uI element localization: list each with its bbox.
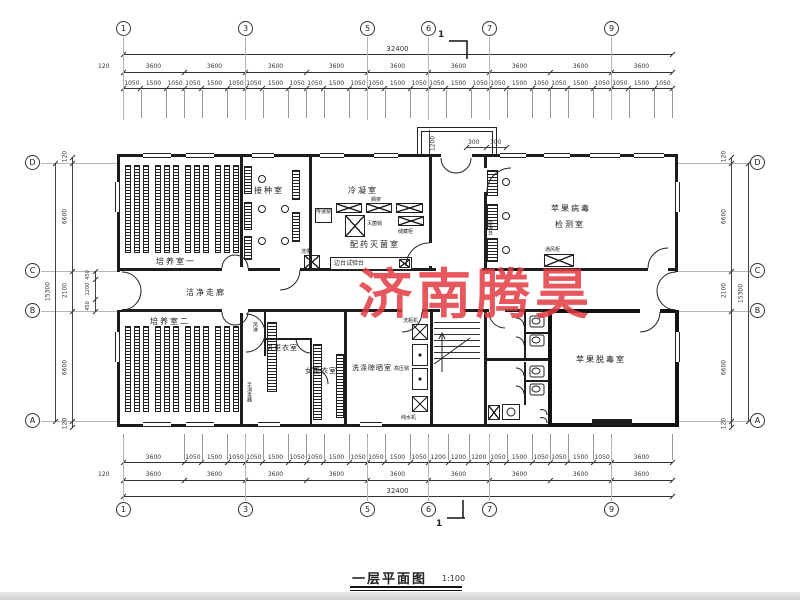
grid-bubble-bottom-7: 7 (482, 502, 497, 517)
grid-bubble-right-C: C (750, 263, 765, 278)
grid-bubble-top-9: 9 (604, 21, 619, 36)
toilet-fixture (532, 368, 540, 374)
stall-door-swings (516, 318, 524, 394)
urinal-fixtures (540, 410, 547, 423)
door-swing-culture1 (222, 255, 248, 268)
grid-bubble-right-B: B (750, 303, 765, 318)
grid-bubble-left-C: C (25, 263, 40, 278)
grid-bubble-bottom-6: 6 (421, 502, 436, 517)
grid-bubble-left-A: A (25, 413, 40, 428)
washbasin-bowl (507, 408, 515, 416)
floor-plan-canvas: 1 3 5 6 7 9 1 3 5 6 7 9 D C B A D C B A … (0, 0, 800, 600)
grid-bubble-top-7: 7 (482, 21, 497, 36)
grid-bubble-right-D: D (750, 155, 765, 170)
door-swing-culture2 (222, 312, 248, 325)
toilet-fixture (532, 337, 540, 343)
grid-bubble-top-6: 6 (421, 21, 436, 36)
door-swing-test-corridor (648, 248, 668, 268)
grid-bubble-top-3: 3 (238, 21, 253, 36)
door-swing-east-entrance (657, 272, 676, 310)
grid-bubble-bottom-1: 1 (116, 502, 131, 517)
door-swing-inoculation (280, 270, 300, 290)
stair-direction-arrow (439, 333, 445, 372)
grid-bubble-bottom-9: 9 (604, 502, 619, 517)
watermark-text: 济南腾昊 (358, 250, 594, 329)
stair-break-line (434, 338, 470, 364)
door-swing-west-entrance (122, 272, 141, 310)
grid-bubble-top-1: 1 (116, 21, 131, 36)
door-swing-women-changing (312, 368, 328, 384)
door-swing-detox (640, 312, 660, 332)
grid-bubble-left-D: D (25, 155, 40, 170)
section-mark-bottom (447, 500, 465, 518)
grid-bubble-left-B: B (25, 303, 40, 318)
door-swing-men-changing (296, 338, 311, 353)
door-swing-hall-test (487, 168, 511, 192)
grid-bubble-right-A: A (750, 413, 765, 428)
section-mark-top (449, 41, 467, 59)
toilet-fixture (532, 386, 540, 392)
grid-bubble-bottom-3: 3 (238, 502, 253, 517)
grid-bubble-bottom-5: 5 (360, 502, 375, 517)
air-shower-booth (246, 314, 265, 352)
door-swing-main-entrance (441, 158, 471, 173)
grid-bubble-top-5: 5 (360, 21, 375, 36)
